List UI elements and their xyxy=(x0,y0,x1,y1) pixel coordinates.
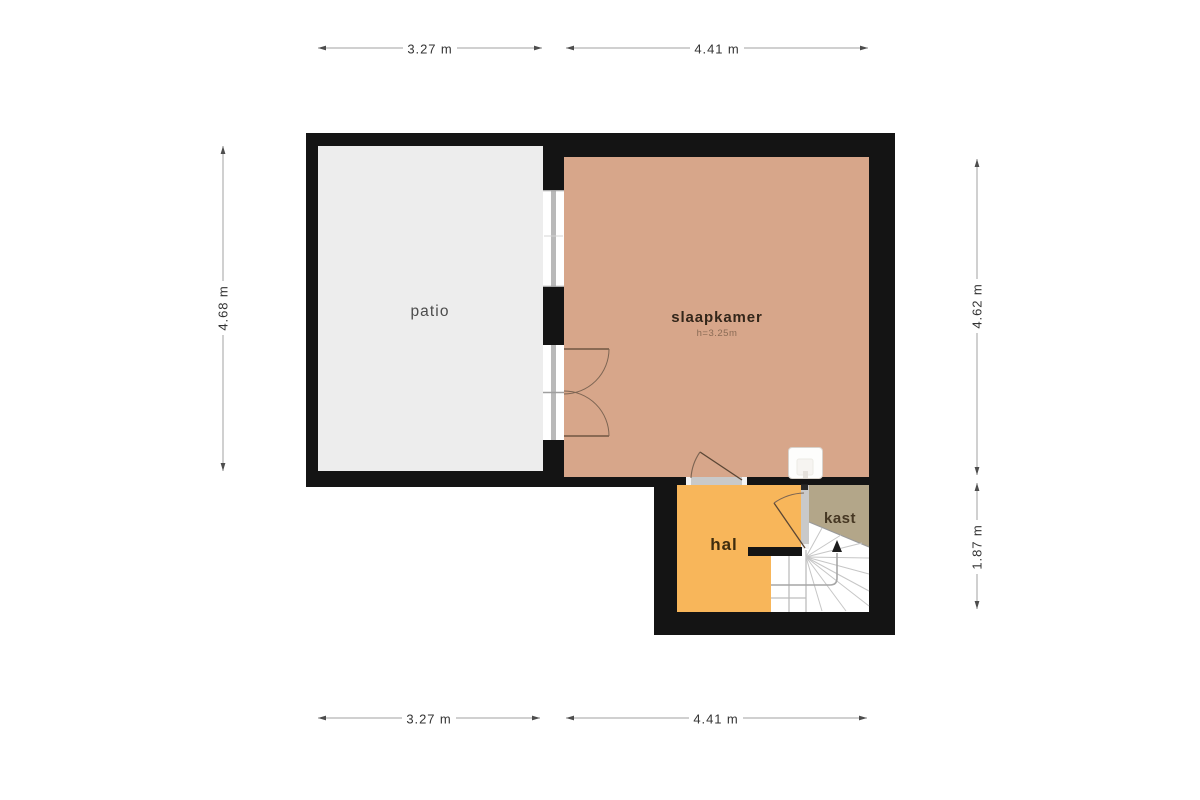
svg-text:4.41 m: 4.41 m xyxy=(694,42,739,57)
svg-text:1.87 m: 1.87 m xyxy=(970,524,985,569)
svg-text:kast: kast xyxy=(824,510,856,527)
svg-text:4.68 m: 4.68 m xyxy=(216,285,231,330)
svg-text:3.27 m: 3.27 m xyxy=(407,42,452,57)
svg-text:hal: hal xyxy=(710,535,738,554)
svg-text:h=3.25m: h=3.25m xyxy=(697,328,738,339)
svg-text:patio: patio xyxy=(410,303,449,320)
svg-text:3.27 m: 3.27 m xyxy=(406,712,451,727)
svg-text:slaapkamer: slaapkamer xyxy=(671,309,763,326)
svg-text:4.62 m: 4.62 m xyxy=(970,283,985,328)
svg-text:4.41 m: 4.41 m xyxy=(693,712,738,727)
